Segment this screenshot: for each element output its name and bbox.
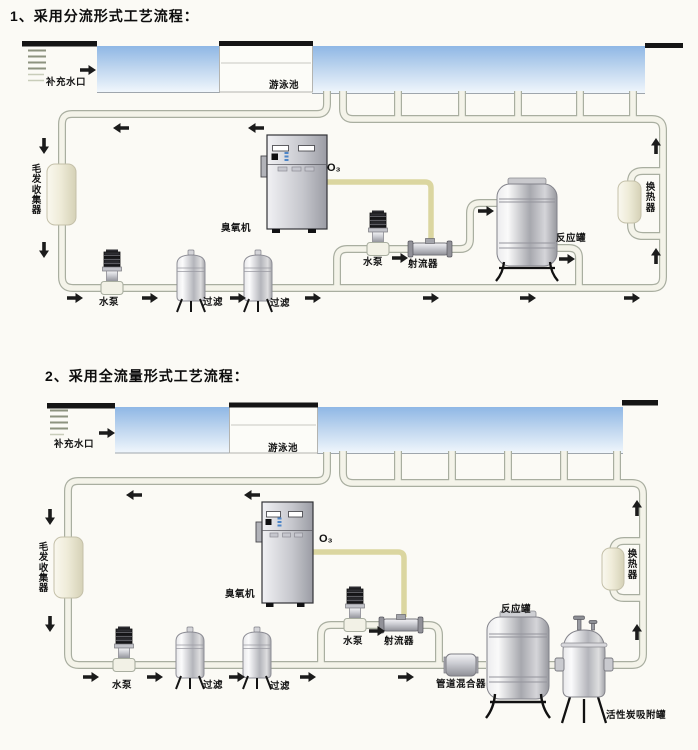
filter-vessel-icon <box>243 627 271 689</box>
reaction-tank-icon <box>496 178 558 281</box>
flow-arrow-icon <box>520 293 536 303</box>
jet-injector-icon <box>408 239 452 258</box>
flow-arrow-icon <box>83 672 99 682</box>
flow-arrow-icon <box>624 293 640 303</box>
label-pool: 游泳池 <box>269 77 299 91</box>
flow-arrow-icon <box>478 206 494 216</box>
jet-injector-icon <box>379 615 423 634</box>
flow-arrow-icon <box>39 138 49 154</box>
flow-arrow-icon <box>423 293 439 303</box>
flow-arrow-icon <box>142 293 158 303</box>
water-pump-icon <box>113 627 135 672</box>
heat-exchanger-icon <box>618 181 641 223</box>
label-reaction-tank: 反应罐 <box>501 601 531 615</box>
flow-arrow-icon <box>45 616 55 632</box>
filter-vessel-icon <box>244 250 272 312</box>
label-ozone-generator: 臭氧机 <box>221 220 251 234</box>
flow-arrow-icon <box>305 293 321 303</box>
swimming-pool <box>47 400 658 454</box>
reaction-tank-icon <box>486 611 550 718</box>
flow-arrow-icon <box>99 428 115 438</box>
flow-arrow-icon <box>398 672 414 682</box>
filter-vessel-icon <box>176 627 204 689</box>
heat-exchanger-icon <box>602 548 624 590</box>
flow-arrow-icon <box>147 672 163 682</box>
label-filter: 过滤 <box>270 678 290 692</box>
flow-arrow-icon <box>126 490 142 500</box>
makeup-water-inlet-icon <box>50 411 68 435</box>
flow1-title: 1、采用分流形式工艺流程： <box>10 6 199 26</box>
label-makeup-inlet: 补充水口 <box>46 74 86 88</box>
label-heat-exchanger: 换热器 <box>644 183 657 214</box>
label-makeup-inlet: 补充水口 <box>54 436 94 450</box>
label-hair-collector: 毛发收集器 <box>30 165 43 216</box>
label-hair-collector: 毛发收集器 <box>37 543 50 594</box>
flow-arrow-icon <box>244 490 260 500</box>
hair-collector-icon <box>54 537 83 598</box>
label-booster-pump: 水泵 <box>363 254 383 268</box>
flow-arrow-icon <box>300 672 316 682</box>
label-ozone-gas: O₃ <box>319 533 333 545</box>
flow-arrow-icon <box>392 253 408 263</box>
flow-arrow-icon <box>113 123 129 133</box>
label-main-pump: 水泵 <box>112 677 132 691</box>
label-ozone-gas: O₃ <box>327 162 341 174</box>
water-pump-icon <box>367 211 389 256</box>
label-booster-pump: 水泵 <box>343 633 363 647</box>
flow-arrow-icon <box>45 509 55 525</box>
flow-arrow-icon <box>559 254 575 264</box>
ozone-generator-icon <box>261 135 327 233</box>
label-pool: 游泳池 <box>268 440 298 454</box>
flow-arrow-icon <box>248 123 264 133</box>
label-filter: 过滤 <box>270 295 290 309</box>
swimming-pool <box>22 41 683 94</box>
page: 1、采用分流形式工艺流程： 补充水口 游泳池 毛发收集器 水泵 过滤 过滤 臭氧… <box>0 0 698 750</box>
flow-arrow-icon <box>67 293 83 303</box>
label-heat-exchanger: 换热器 <box>626 550 639 581</box>
label-filter: 过滤 <box>203 677 223 691</box>
flow1-diagram <box>22 41 683 312</box>
flow2-title: 2、采用全流量形式工艺流程： <box>45 366 249 386</box>
label-main-pump: 水泵 <box>99 294 119 308</box>
flow-arrow-icon <box>39 242 49 258</box>
label-jet-injector: 射流器 <box>384 633 414 647</box>
hair-collector-icon <box>47 164 76 225</box>
label-pipeline-mixer: 管道混合器 <box>436 676 486 690</box>
label-jet-injector: 射流器 <box>408 256 438 270</box>
label-ozone-generator: 臭氧机 <box>225 586 255 600</box>
ozone-generator-icon <box>256 502 313 607</box>
label-activated-carbon-tank: 活性炭吸附罐 <box>606 707 666 721</box>
water-pump-icon <box>344 587 366 632</box>
water-pump-icon <box>101 250 123 295</box>
label-reaction-tank: 反应罐 <box>556 230 586 244</box>
makeup-water-inlet-icon <box>28 51 46 81</box>
filter-vessel-icon <box>177 250 205 312</box>
activated-carbon-tank-icon <box>555 616 613 723</box>
flow2-diagram <box>45 400 658 723</box>
pipeline-mixer-icon <box>444 654 478 676</box>
label-filter: 过滤 <box>203 294 223 308</box>
